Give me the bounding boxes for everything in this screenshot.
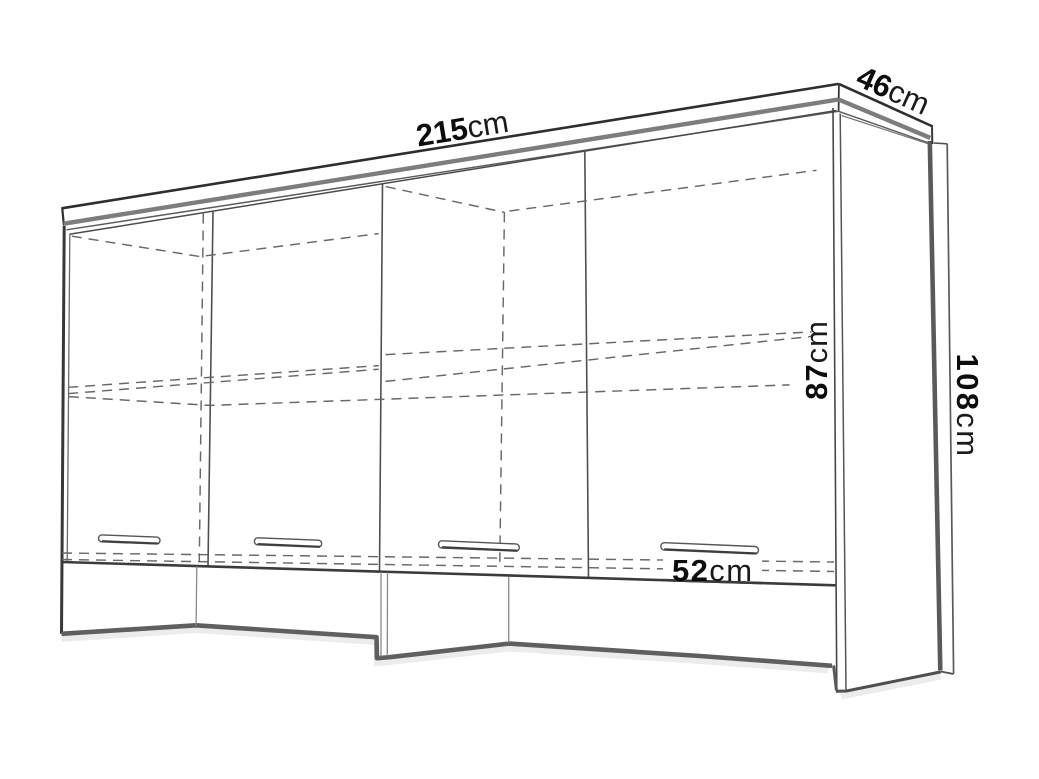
svg-text:87cm: 87cm <box>799 320 834 400</box>
svg-text:52cm: 52cm <box>672 553 753 588</box>
svg-text:108cm: 108cm <box>950 353 985 458</box>
